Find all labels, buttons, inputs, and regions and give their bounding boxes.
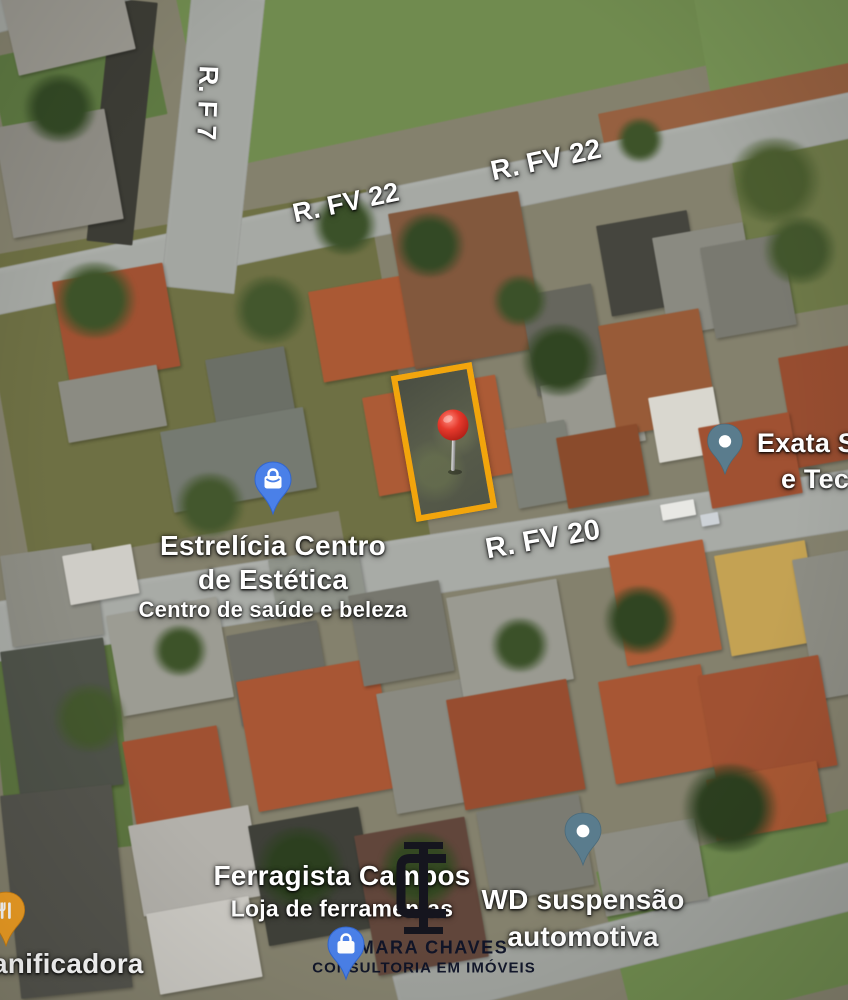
tree bbox=[50, 262, 140, 339]
red-pin-icon[interactable] bbox=[431, 406, 475, 482]
restaurant-pin-icon[interactable] bbox=[0, 891, 28, 951]
place-pin-icon[interactable] bbox=[563, 812, 603, 870]
poi-label-estrelicia-line2[interactable]: de Estética bbox=[198, 564, 348, 596]
shopping-bag-pin-icon bbox=[326, 926, 366, 984]
poi-label-wd-line1[interactable]: WD suspensão bbox=[481, 884, 684, 916]
tree bbox=[50, 684, 130, 752]
street-label-f7: R. F 7 bbox=[190, 65, 224, 141]
tree bbox=[392, 213, 468, 278]
tree bbox=[490, 275, 550, 326]
poi-sublabel-estrelicia[interactable]: Centro de saúde e beleza bbox=[139, 597, 408, 623]
building-roof bbox=[446, 679, 586, 810]
tree bbox=[172, 473, 248, 538]
poi-label-wd-line2[interactable]: automotiva bbox=[507, 921, 658, 953]
shopping-bag-pin-icon[interactable] bbox=[252, 461, 294, 519]
tree bbox=[230, 276, 310, 344]
tree bbox=[488, 618, 552, 672]
tree bbox=[760, 216, 840, 284]
poi-label-estrelicia-line1[interactable]: Estrelícia Centro bbox=[160, 530, 386, 562]
tree bbox=[614, 118, 666, 162]
tree bbox=[600, 586, 680, 654]
tree bbox=[150, 625, 210, 676]
poi-label-exata-line1[interactable]: Exata S bbox=[757, 428, 848, 459]
poi-label-exata-line2[interactable]: e Tec bbox=[781, 464, 848, 495]
tree bbox=[518, 324, 602, 395]
tree bbox=[678, 764, 782, 852]
building-roof bbox=[556, 424, 649, 509]
poi-label-panificadora[interactable]: anificadora bbox=[0, 948, 144, 980]
place-pin-icon[interactable] bbox=[705, 423, 745, 479]
tree bbox=[725, 138, 825, 223]
building-roof bbox=[348, 580, 455, 687]
ilmara-chaves-monogram-icon bbox=[388, 842, 460, 934]
satellite-map-canvas[interactable]: R. F 7 R. FV 22 R. FV 22 R. FV 20 Estrel… bbox=[0, 0, 848, 1000]
tree bbox=[20, 74, 100, 142]
